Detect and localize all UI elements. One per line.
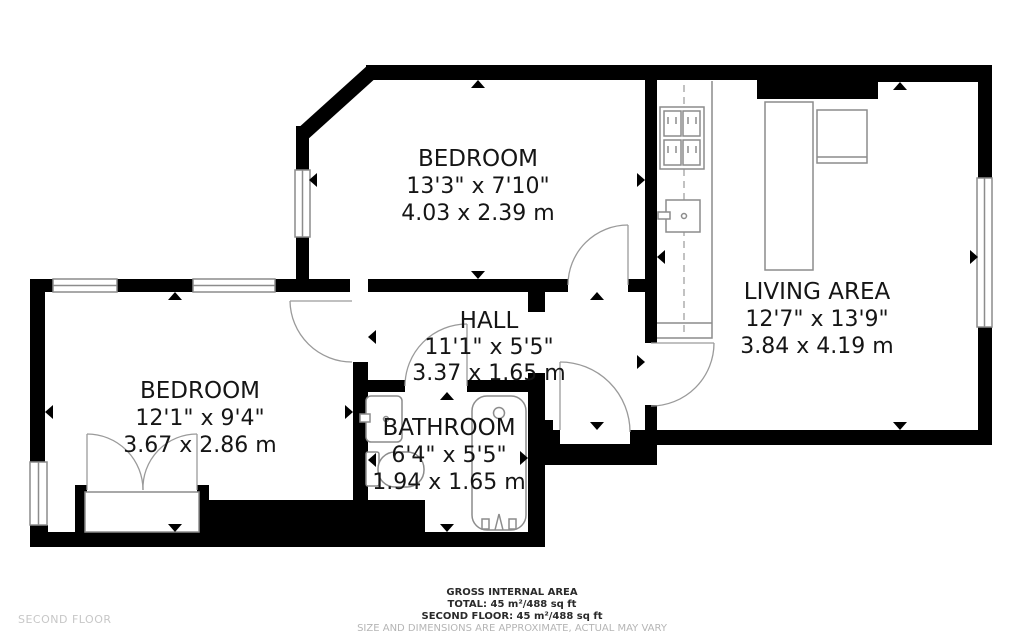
marker-left-bedroom-east [345,405,353,419]
footer-floor-area: SECOND FLOOR: 45 m²/488 sq ft [422,611,603,622]
room-name: LIVING AREA [744,279,891,305]
marker-left-bedroom-west [45,405,53,419]
room-dim-metric: 4.03 x 2.39 m [401,201,554,226]
label-top-bedroom: BEDROOM 13'3" x 7'10" 4.03 x 2.39 m [401,146,554,226]
wall-bathroom-south-chunk [355,500,425,532]
door-living-area [651,343,714,406]
wall-bathroom-south [355,532,545,547]
wall-living-east-lower [978,327,992,445]
closet-box [85,492,199,532]
marker-hall-north [590,292,604,300]
room-dim-imperial: 13'3" x 7'10" [406,174,549,199]
window-left-bedroom-west [30,462,47,525]
kitchen-units [657,81,712,338]
window-top-bedroom-west [295,170,310,237]
room-dim-metric: 3.67 x 2.86 m [123,433,276,458]
wall-hall-east-lower [645,405,657,432]
wall-kitchen-north [657,65,757,80]
label-left-bedroom: BEDROOM 12'1" x 9'4" 3.67 x 2.86 m [123,378,276,458]
room-dim-imperial: 6'4" x 5'5" [391,443,506,468]
floorplan-drawing: BEDROOM 13'3" x 7'10" 4.03 x 2.39 m LIVI… [0,0,1024,640]
room-dim-metric: 3.37 x 1.65 m [412,361,565,386]
wall-living-south [645,430,992,445]
wall-living-north-thick [757,65,878,99]
room-dim-metric: 1.94 x 1.65 m [372,470,525,495]
footer-gross-internal-area: GROSS INTERNAL AREA [446,587,578,598]
opening-living-door [645,343,657,405]
wall-left-bedroom-west-upper [30,279,45,462]
furniture-table [817,110,867,163]
room-dim-imperial: 11'1" x 5'5" [424,335,553,360]
marker-left-bedroom-north [168,292,182,300]
opening-entrance-door [560,430,630,444]
label-bathroom: BATHROOM 6'4" x 5'5" 1.94 x 1.65 m [372,415,525,495]
door-top-bedroom [568,225,628,285]
label-hall: HALL 11'1" x 5'5" 3.37 x 1.65 m [412,308,565,386]
marker-top-bedroom-north [471,80,485,88]
marker-bathroom-north [440,392,454,400]
marker-hall-east [637,355,645,369]
floor-label: SECOND FLOOR [18,613,112,626]
wall-hall-east-upper [645,292,657,343]
footer: GROSS INTERNAL AREA TOTAL: 45 m²/488 sq … [18,587,668,634]
marker-living-west [657,250,665,264]
door-left-bedroom [290,301,352,362]
wall-top-bedroom-north [366,65,657,80]
wall-living-east-upper [978,65,992,178]
wall-bedroom-living-divider [645,65,657,280]
marker-bathroom-south [440,524,454,532]
room-dim-imperial: 12'1" x 9'4" [135,406,264,431]
room-dim-metric: 3.84 x 4.19 m [740,334,893,359]
marker-hall-west [368,330,376,344]
door-entrance [560,362,630,432]
marker-hall-south [590,422,604,430]
footer-disclaimer: SIZE AND DIMENSIONS ARE APPROXIMATE, ACT… [357,623,668,634]
window-living-east [977,178,992,327]
opening-top-bedroom-door [568,279,628,292]
wall-left-bedroom-south-thin [30,532,210,547]
marker-living-south [893,422,907,430]
window-left-bedroom-north-1 [53,279,117,292]
room-name: BEDROOM [140,378,260,404]
marker-living-north [893,82,907,90]
room-name: HALL [460,308,519,334]
room-dim-imperial: 12'7" x 13'9" [745,307,888,332]
label-living-area: LIVING AREA 12'7" x 13'9" 3.84 x 4.19 m [740,279,893,359]
floorplan-page: BEDROOM 13'3" x 7'10" 4.03 x 2.39 m LIVI… [0,0,1024,640]
hob-icon [660,107,704,169]
wall-pillar-hall [528,279,545,312]
window-left-bedroom-north-2 [193,279,275,292]
footer-total-area: TOTAL: 45 m²/488 sq ft [448,599,577,610]
marker-top-bedroom-east [637,173,645,187]
marker-top-bedroom-south [471,271,485,279]
room-name: BEDROOM [418,146,538,172]
sink-icon [658,200,700,232]
wall-living-north [878,65,992,82]
living-furniture [765,102,867,270]
wall-left-bedroom-south-thick [205,500,365,547]
furniture-tall-unit [765,102,813,270]
room-name: BATHROOM [382,415,515,441]
